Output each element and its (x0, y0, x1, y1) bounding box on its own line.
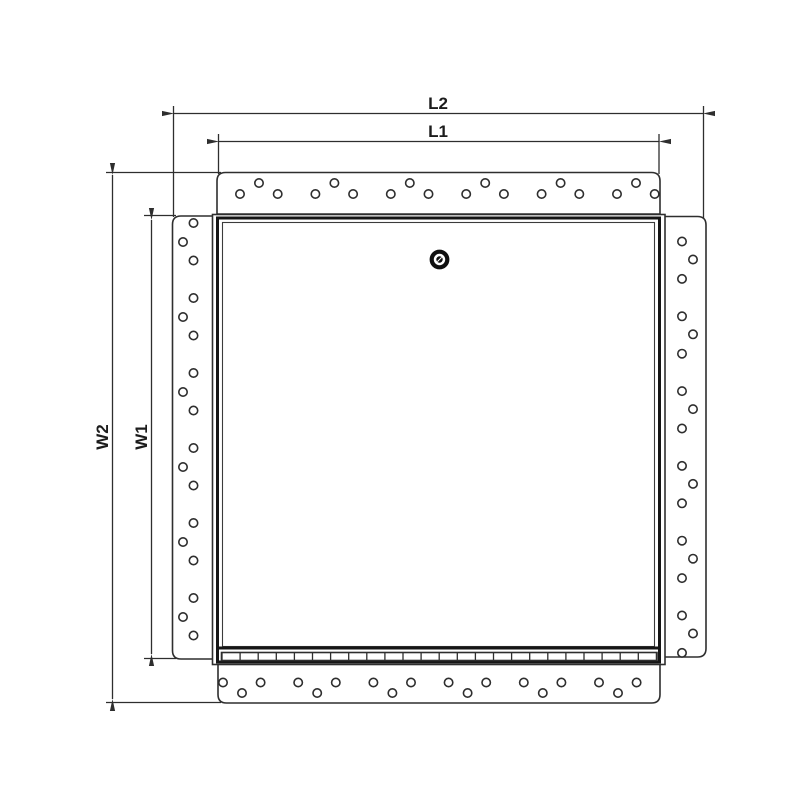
mounting-hole (500, 190, 508, 198)
mounting-hole (557, 678, 565, 686)
mounting-hole (189, 219, 197, 227)
mounting-hole (689, 555, 697, 563)
mounting-hole (632, 179, 640, 187)
mounting-hole (189, 406, 197, 414)
mounting-hole (313, 689, 321, 697)
mounting-hole (462, 190, 470, 198)
mounting-hole (678, 649, 686, 657)
mounting-hole (388, 689, 396, 697)
mounting-hole (678, 237, 686, 245)
bottom-flange (218, 664, 660, 703)
mounting-hole (236, 190, 244, 198)
technical-drawing-page: L2 L1 W2 W1 (0, 0, 800, 800)
mounting-hole (311, 190, 319, 198)
left-flange (173, 216, 216, 659)
mounting-hole (678, 350, 686, 358)
mounting-hole (689, 330, 697, 338)
mounting-hole (179, 613, 187, 621)
mounting-hole (463, 689, 471, 697)
mounting-hole (332, 678, 340, 686)
mounting-hole (556, 179, 564, 187)
mounting-hole (369, 678, 377, 686)
mounting-hole (407, 678, 415, 686)
mounting-hole (678, 387, 686, 395)
mounting-hole (189, 256, 197, 264)
mounting-hole (481, 179, 489, 187)
mounting-hole (189, 631, 197, 639)
mounting-hole (678, 499, 686, 507)
access-panel-drawing: L2 L1 W2 W1 (0, 0, 800, 800)
mounting-hole (632, 678, 640, 686)
mounting-hole (330, 179, 338, 187)
panel-frame-and-door (213, 215, 666, 665)
mounting-hole (613, 190, 621, 198)
mounting-hole (179, 538, 187, 546)
dimension-l1: L1 (219, 122, 660, 174)
mounting-hole (614, 689, 622, 697)
mounting-hole (678, 462, 686, 470)
mounting-hole (595, 678, 603, 686)
mounting-hole (520, 678, 528, 686)
mounting-hole (189, 331, 197, 339)
mounting-hole (537, 190, 545, 198)
dimension-w1: W1 (132, 216, 176, 659)
mounting-hole (189, 369, 197, 377)
mounting-hole (678, 312, 686, 320)
cam-lock (432, 252, 448, 268)
mounting-hole (444, 678, 452, 686)
mounting-hole (274, 190, 282, 198)
mounting-hole (189, 444, 197, 452)
dimension-label-l2: L2 (428, 94, 448, 113)
mounting-hole (689, 629, 697, 637)
mounting-hole (256, 678, 264, 686)
mounting-hole (482, 678, 490, 686)
mounting-hole (424, 190, 432, 198)
mounting-hole (179, 388, 187, 396)
mounting-hole (678, 275, 686, 283)
mounting-hole (294, 678, 302, 686)
mounting-hole (179, 463, 187, 471)
mounting-hole (678, 424, 686, 432)
mounting-hole (238, 689, 246, 697)
mounting-hole (189, 594, 197, 602)
mounting-hole (179, 238, 187, 246)
mounting-hole (255, 179, 263, 187)
mounting-hole (678, 574, 686, 582)
mounting-hole (179, 313, 187, 321)
mounting-hole (689, 405, 697, 413)
mounting-hole (651, 190, 659, 198)
mounting-hole (219, 678, 227, 686)
mounting-hole (189, 556, 197, 564)
mounting-hole (678, 611, 686, 619)
mounting-hole (406, 179, 414, 187)
dimension-label-l1: L1 (428, 122, 448, 141)
mounting-hole (349, 190, 357, 198)
mounting-hole (575, 190, 583, 198)
mounting-hole (689, 255, 697, 263)
mounting-hole (189, 519, 197, 527)
top-flange (217, 173, 660, 215)
dimension-label-w1: W1 (132, 424, 151, 450)
dimension-label-w2: W2 (93, 424, 112, 450)
mounting-hole (689, 480, 697, 488)
mounting-hole (189, 481, 197, 489)
wall-frame (213, 215, 666, 665)
mounting-hole (387, 190, 395, 198)
mounting-hole (189, 294, 197, 302)
mounting-hole (678, 537, 686, 545)
mounting-hole (539, 689, 547, 697)
